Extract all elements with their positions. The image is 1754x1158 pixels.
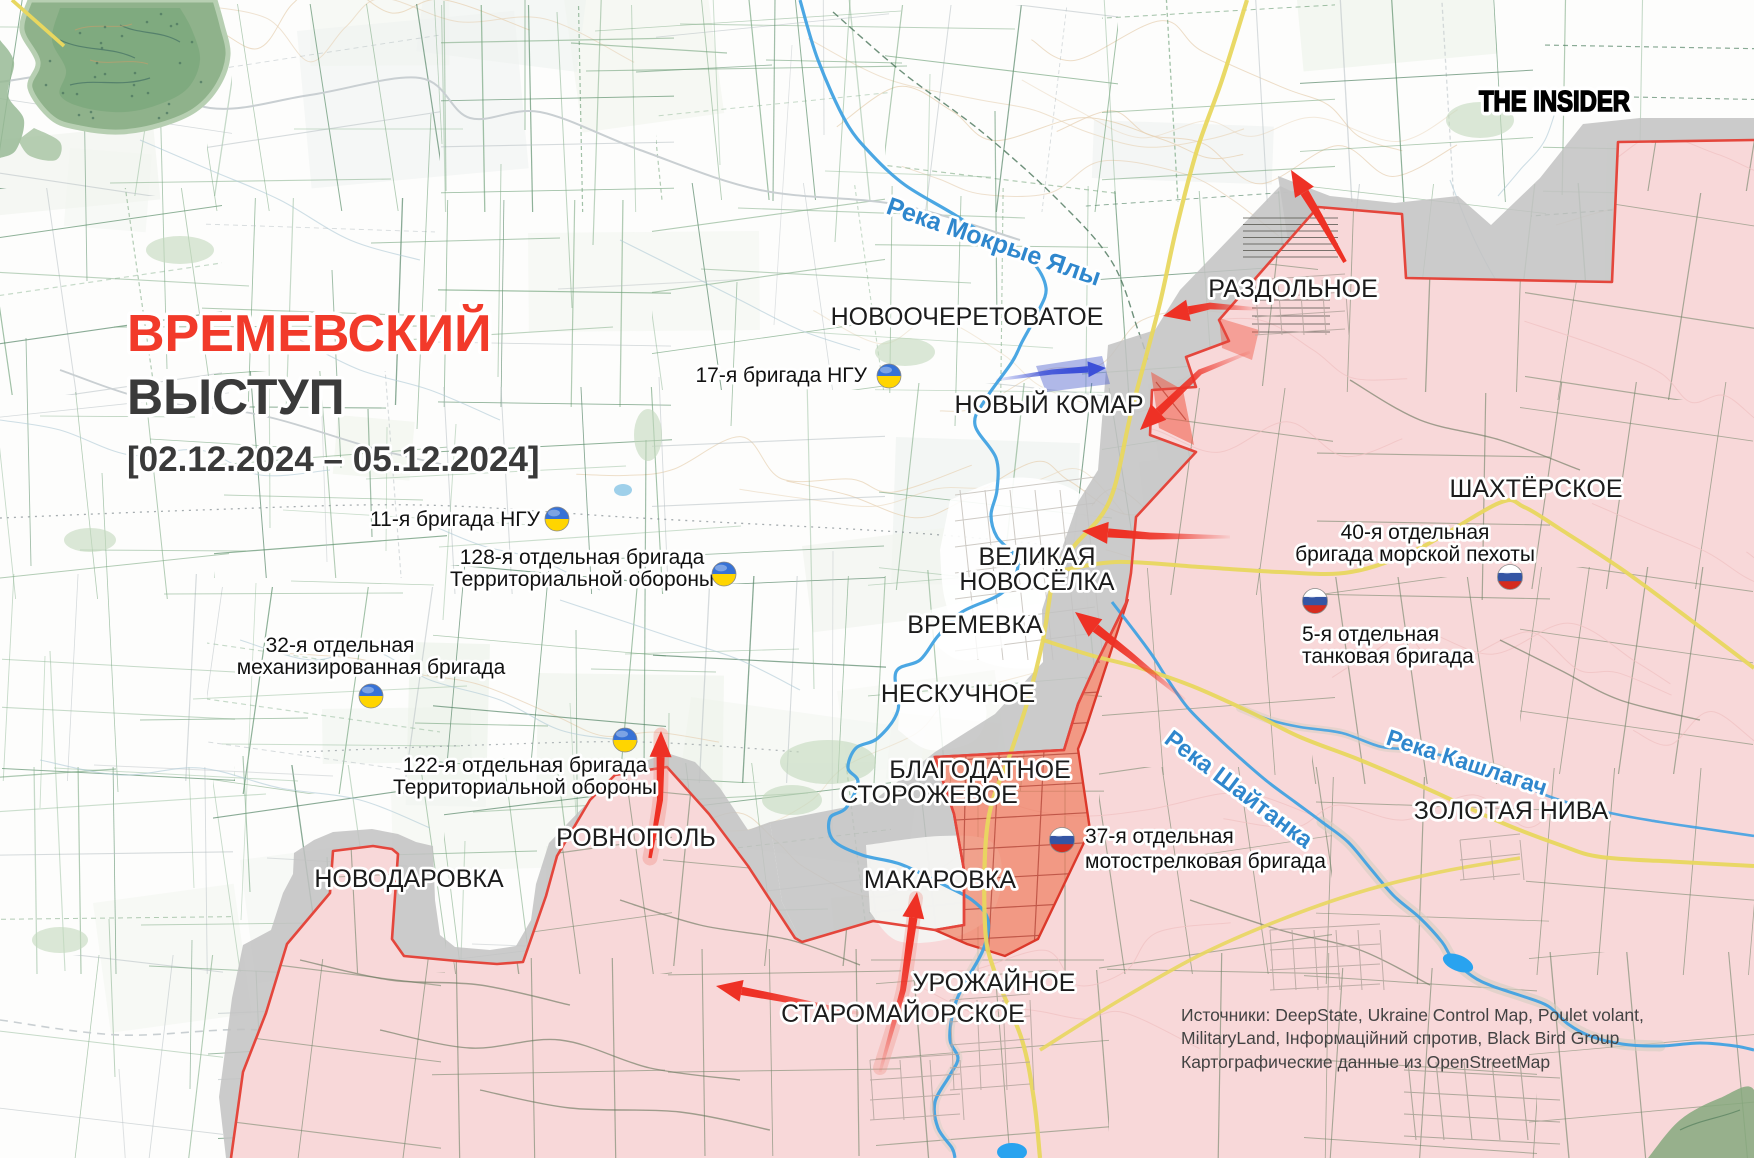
svg-text:40-я отдельная: 40-я отдельная bbox=[1341, 521, 1490, 544]
svg-text:5-я отдельная: 5-я отдельная bbox=[1302, 623, 1439, 646]
svg-text:17-я бригада НГУ: 17-я бригада НГУ bbox=[695, 364, 867, 387]
svg-text:122-я отдельная бригада: 122-я отдельная бригада bbox=[403, 754, 648, 777]
svg-text:СТАРОМАЙОРСКОЕ: СТАРОМАЙОРСКОЕ bbox=[781, 998, 1025, 1028]
svg-text:мотострелковая бригада: мотострелковая бригада bbox=[1085, 850, 1326, 873]
svg-text:ВЕЛИКАЯ: ВЕЛИКАЯ bbox=[978, 543, 1095, 571]
svg-text:НЕСКУЧНОЕ: НЕСКУЧНОЕ bbox=[881, 680, 1035, 708]
svg-text:бригада морской пехоты: бригада морской пехоты bbox=[1295, 543, 1535, 566]
svg-text:танковая бригада: танковая бригада bbox=[1302, 645, 1474, 668]
svg-text:БЛАГОДАТНОЕ: БЛАГОДАТНОЕ bbox=[889, 756, 1071, 784]
svg-text:НОВОДАРОВКА: НОВОДАРОВКА bbox=[314, 865, 504, 893]
svg-text:УРОЖАЙНОЕ: УРОЖАЙНОЕ bbox=[913, 967, 1076, 997]
svg-text:НОВООЧЕРЕТОВАТОЕ: НОВООЧЕРЕТОВАТОЕ bbox=[831, 303, 1104, 331]
svg-text:Картографические данные из Ope: Картографические данные из OpenStreetMap bbox=[1181, 1052, 1550, 1072]
svg-text:MilitaryLand, Інформаційний сп: MilitaryLand, Інформаційний спротив, Bla… bbox=[1181, 1028, 1619, 1048]
svg-text:Территориальной обороны: Территориальной обороны bbox=[393, 776, 657, 799]
svg-text:11-я бригада НГУ: 11-я бригада НГУ bbox=[370, 508, 541, 531]
svg-text:Территориальной обороны: Территориальной обороны bbox=[450, 568, 714, 591]
svg-text:[02.12.2024 – 05.12.2024]: [02.12.2024 – 05.12.2024] bbox=[127, 440, 540, 479]
svg-text:32-я отдельная: 32-я отдельная bbox=[266, 634, 415, 657]
svg-text:механизированная бригада: механизированная бригада bbox=[237, 656, 506, 679]
svg-text:РАЗДОЛЬНОЕ: РАЗДОЛЬНОЕ bbox=[1208, 275, 1378, 303]
svg-text:ВРЕМЕВКА: ВРЕМЕВКА bbox=[907, 611, 1043, 639]
svg-text:Источники: DeepState, Ukraine: Источники: DeepState, Ukraine Control Ma… bbox=[1181, 1005, 1644, 1025]
svg-text:НОВОСЁЛКА: НОВОСЁЛКА bbox=[959, 568, 1115, 596]
svg-text:РОВНОПОЛЬ: РОВНОПОЛЬ bbox=[556, 824, 716, 852]
svg-text:НОВЫЙ КОМАР: НОВЫЙ КОМАР bbox=[954, 389, 1143, 419]
svg-text:ЗОЛОТАЯ НИВА: ЗОЛОТАЯ НИВА bbox=[1414, 797, 1609, 825]
svg-text:ШАХТЁРСКОЕ: ШАХТЁРСКОЕ bbox=[1449, 475, 1622, 503]
svg-text:128-я отдельная бригада: 128-я отдельная бригада bbox=[460, 546, 705, 569]
svg-text:37-я отдельная: 37-я отдельная bbox=[1085, 825, 1234, 848]
svg-text:THE INSIDER: THE INSIDER bbox=[1479, 86, 1630, 118]
svg-text:МАКАРОВКА: МАКАРОВКА bbox=[864, 866, 1017, 894]
svg-text:СТОРОЖЕВОЕ: СТОРОЖЕВОЕ bbox=[840, 781, 1018, 809]
svg-text:ВЫСТУП: ВЫСТУП bbox=[127, 369, 345, 425]
svg-text:ВРЕМЕВСКИЙ: ВРЕМЕВСКИЙ bbox=[127, 304, 492, 363]
